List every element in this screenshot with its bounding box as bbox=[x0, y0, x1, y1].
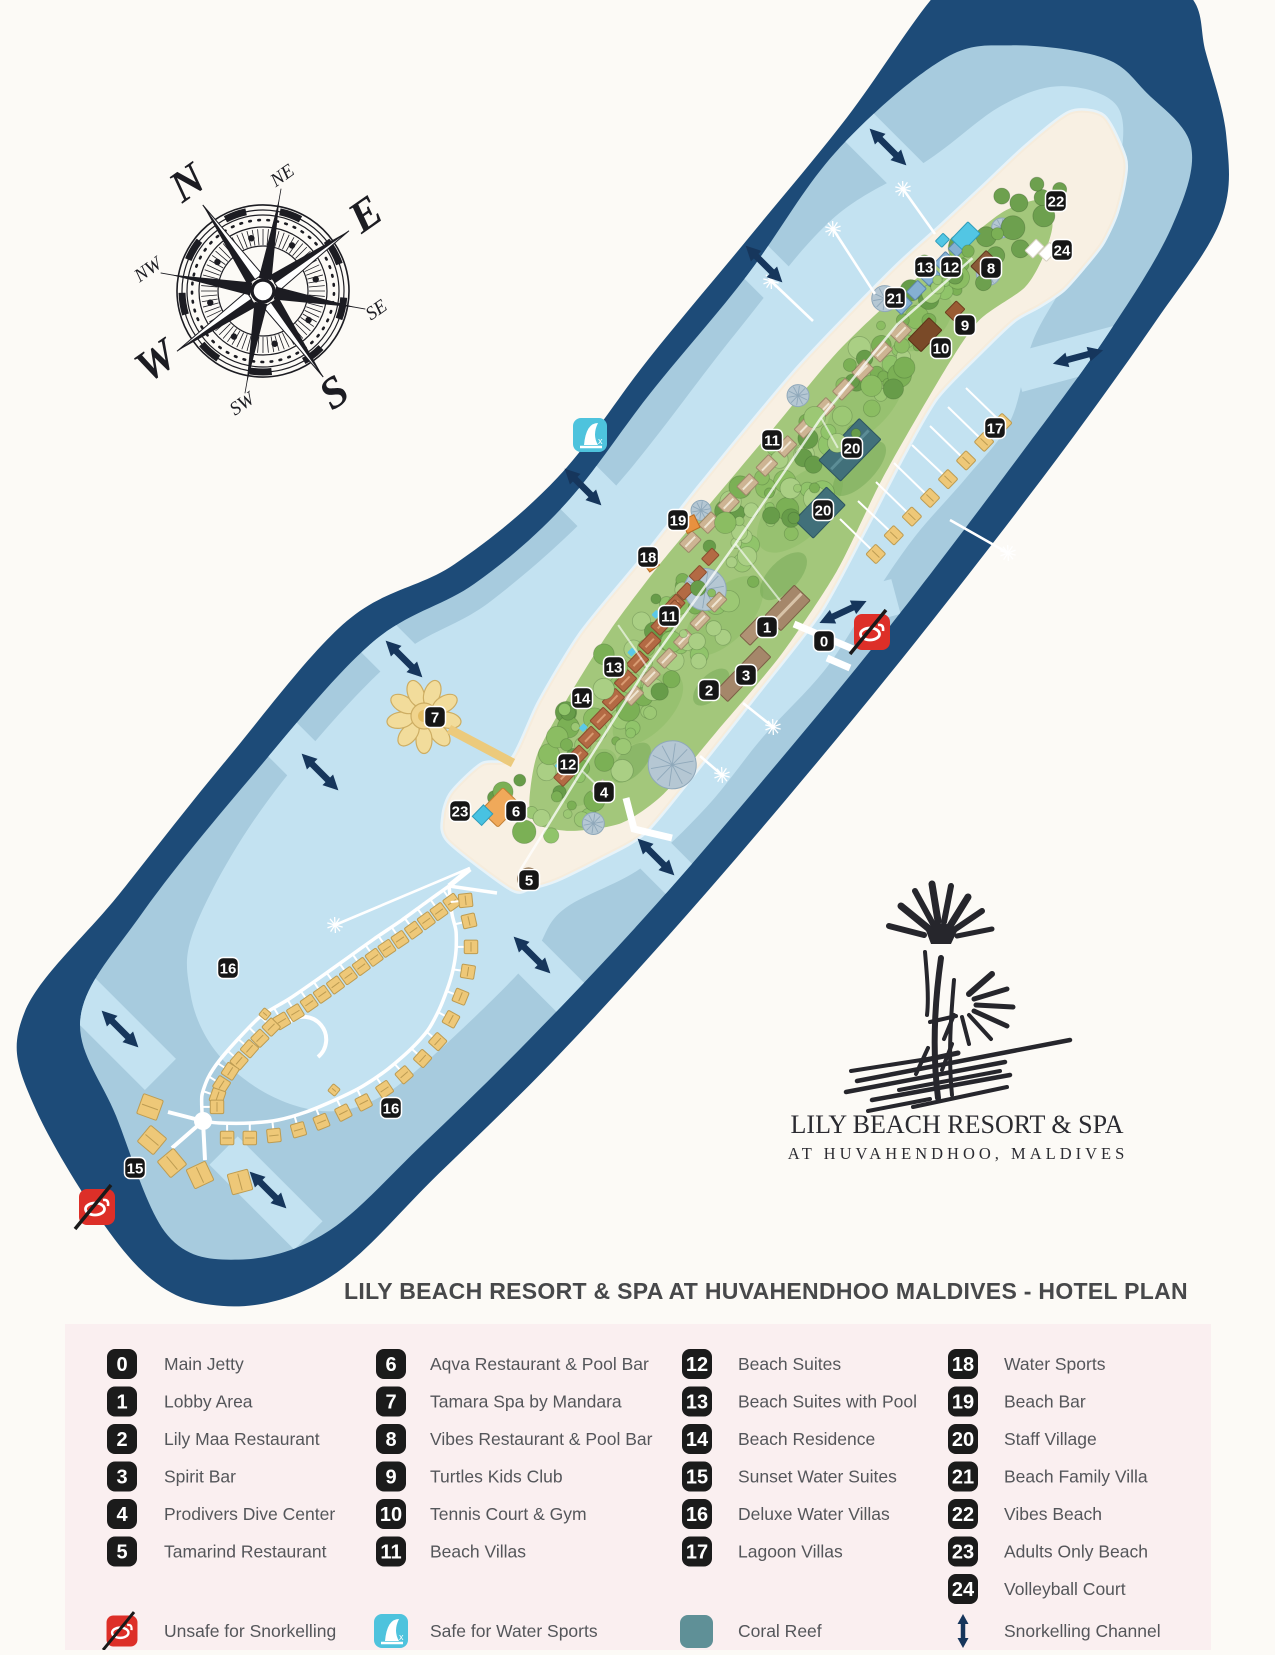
svg-text:Main Jetty: Main Jetty bbox=[164, 1354, 244, 1374]
svg-text:23: 23 bbox=[452, 804, 469, 821]
svg-text:7: 7 bbox=[431, 710, 439, 727]
svg-text:15: 15 bbox=[127, 1161, 144, 1178]
svg-text:Safe for Water Sports: Safe for Water Sports bbox=[430, 1621, 598, 1641]
svg-text:20: 20 bbox=[815, 503, 832, 520]
svg-text:Beach Residence: Beach Residence bbox=[738, 1429, 875, 1449]
svg-text:12: 12 bbox=[686, 1354, 708, 1376]
svg-text:Sunset Water Suites: Sunset Water Suites bbox=[738, 1467, 897, 1487]
svg-text:Deluxe Water Villas: Deluxe Water Villas bbox=[738, 1504, 890, 1524]
svg-text:Tamara Spa by Mandara: Tamara Spa by Mandara bbox=[430, 1392, 622, 1412]
svg-text:13: 13 bbox=[686, 1392, 708, 1414]
svg-text:Staff Village: Staff Village bbox=[1004, 1429, 1097, 1449]
svg-text:Spirit Bar: Spirit Bar bbox=[164, 1467, 236, 1487]
svg-text:16: 16 bbox=[686, 1504, 708, 1526]
svg-text:11: 11 bbox=[764, 433, 780, 450]
svg-text:Tamarind Restaurant: Tamarind Restaurant bbox=[164, 1542, 327, 1562]
svg-text:0: 0 bbox=[116, 1354, 127, 1376]
svg-text:20: 20 bbox=[844, 441, 861, 458]
svg-text:Lobby Area: Lobby Area bbox=[164, 1392, 253, 1412]
svg-text:14: 14 bbox=[574, 691, 591, 708]
svg-text:5: 5 bbox=[116, 1542, 127, 1564]
svg-text:Beach Suites: Beach Suites bbox=[738, 1354, 841, 1374]
svg-text:6: 6 bbox=[385, 1354, 396, 1376]
svg-text:0: 0 bbox=[820, 634, 828, 651]
svg-text:Lily Maa Restaurant: Lily Maa Restaurant bbox=[164, 1429, 320, 1449]
svg-text:17: 17 bbox=[987, 421, 1004, 438]
svg-text:9: 9 bbox=[385, 1467, 396, 1489]
svg-text:x: x bbox=[598, 436, 603, 446]
svg-text:20: 20 bbox=[952, 1429, 974, 1451]
svg-text:24: 24 bbox=[1054, 243, 1071, 260]
svg-text:23: 23 bbox=[952, 1542, 974, 1564]
svg-text:15: 15 bbox=[686, 1467, 708, 1489]
svg-text:1: 1 bbox=[116, 1392, 127, 1414]
svg-text:16: 16 bbox=[383, 1101, 400, 1118]
svg-text:1: 1 bbox=[763, 620, 771, 637]
svg-text:10: 10 bbox=[933, 341, 950, 358]
svg-text:22: 22 bbox=[1048, 194, 1065, 211]
svg-text:Adults Only Beach: Adults Only Beach bbox=[1004, 1542, 1148, 1562]
svg-text:11: 11 bbox=[661, 609, 677, 626]
svg-text:4: 4 bbox=[600, 785, 609, 802]
svg-text:LILY BEACH RESORT & SPA: LILY BEACH RESORT & SPA bbox=[791, 1110, 1124, 1139]
svg-text:Vibes Restaurant & Pool Bar: Vibes Restaurant & Pool Bar bbox=[430, 1429, 653, 1449]
svg-text:12: 12 bbox=[943, 260, 960, 277]
svg-text:2: 2 bbox=[116, 1429, 127, 1451]
svg-text:Coral Reef: Coral Reef bbox=[738, 1621, 822, 1641]
svg-text:21: 21 bbox=[887, 291, 904, 308]
svg-text:12: 12 bbox=[560, 757, 577, 774]
svg-text:2: 2 bbox=[705, 683, 713, 700]
svg-text:LILY BEACH RESORT & SPA AT HUV: LILY BEACH RESORT & SPA AT HUVAHENDHOO M… bbox=[344, 1278, 1188, 1304]
svg-text:24: 24 bbox=[952, 1579, 975, 1601]
svg-text:21: 21 bbox=[952, 1467, 974, 1489]
svg-text:18: 18 bbox=[640, 550, 657, 567]
svg-text:5: 5 bbox=[525, 873, 533, 890]
svg-text:18: 18 bbox=[952, 1354, 974, 1376]
svg-text:17: 17 bbox=[686, 1542, 708, 1564]
svg-text:9: 9 bbox=[961, 318, 969, 335]
svg-text:Aqva Restaurant & Pool Bar: Aqva Restaurant & Pool Bar bbox=[430, 1354, 649, 1374]
svg-text:Beach Bar: Beach Bar bbox=[1004, 1392, 1086, 1412]
svg-text:3: 3 bbox=[116, 1467, 127, 1489]
svg-text:Volleyball Court: Volleyball Court bbox=[1004, 1579, 1126, 1599]
svg-text:6: 6 bbox=[512, 804, 520, 821]
svg-text:Beach Villas: Beach Villas bbox=[430, 1542, 526, 1562]
svg-text:8: 8 bbox=[385, 1429, 396, 1451]
svg-text:Snorkelling Channel: Snorkelling Channel bbox=[1004, 1621, 1161, 1641]
svg-text:13: 13 bbox=[606, 660, 623, 677]
svg-text:8: 8 bbox=[987, 261, 995, 278]
svg-text:Unsafe for Snorkelling: Unsafe for Snorkelling bbox=[164, 1621, 336, 1641]
svg-text:Tennis Court & Gym: Tennis Court & Gym bbox=[430, 1504, 587, 1524]
svg-text:7: 7 bbox=[385, 1392, 396, 1414]
svg-text:x: x bbox=[399, 1632, 404, 1642]
svg-text:Vibes Beach: Vibes Beach bbox=[1004, 1504, 1102, 1524]
svg-text:AT HUVAHENDHOO, MALDIVES: AT HUVAHENDHOO, MALDIVES bbox=[788, 1144, 1129, 1163]
svg-text:Prodivers Dive Center: Prodivers Dive Center bbox=[164, 1504, 335, 1524]
svg-text:22: 22 bbox=[952, 1504, 974, 1526]
svg-text:10: 10 bbox=[380, 1504, 402, 1526]
svg-text:4: 4 bbox=[116, 1504, 128, 1526]
svg-text:19: 19 bbox=[670, 513, 687, 530]
svg-text:14: 14 bbox=[686, 1429, 709, 1451]
svg-text:Turtles Kids Club: Turtles Kids Club bbox=[430, 1467, 563, 1487]
svg-text:Lagoon Villas: Lagoon Villas bbox=[738, 1542, 843, 1562]
svg-text:3: 3 bbox=[742, 668, 750, 685]
svg-text:Beach Suites with Pool: Beach Suites with Pool bbox=[738, 1392, 917, 1412]
svg-text:13: 13 bbox=[917, 260, 934, 277]
svg-text:Beach Family Villa: Beach Family Villa bbox=[1004, 1467, 1148, 1487]
svg-text:Water Sports: Water Sports bbox=[1004, 1354, 1106, 1374]
svg-text:19: 19 bbox=[952, 1392, 974, 1414]
svg-text:16: 16 bbox=[220, 961, 237, 978]
svg-text:11: 11 bbox=[380, 1542, 401, 1564]
